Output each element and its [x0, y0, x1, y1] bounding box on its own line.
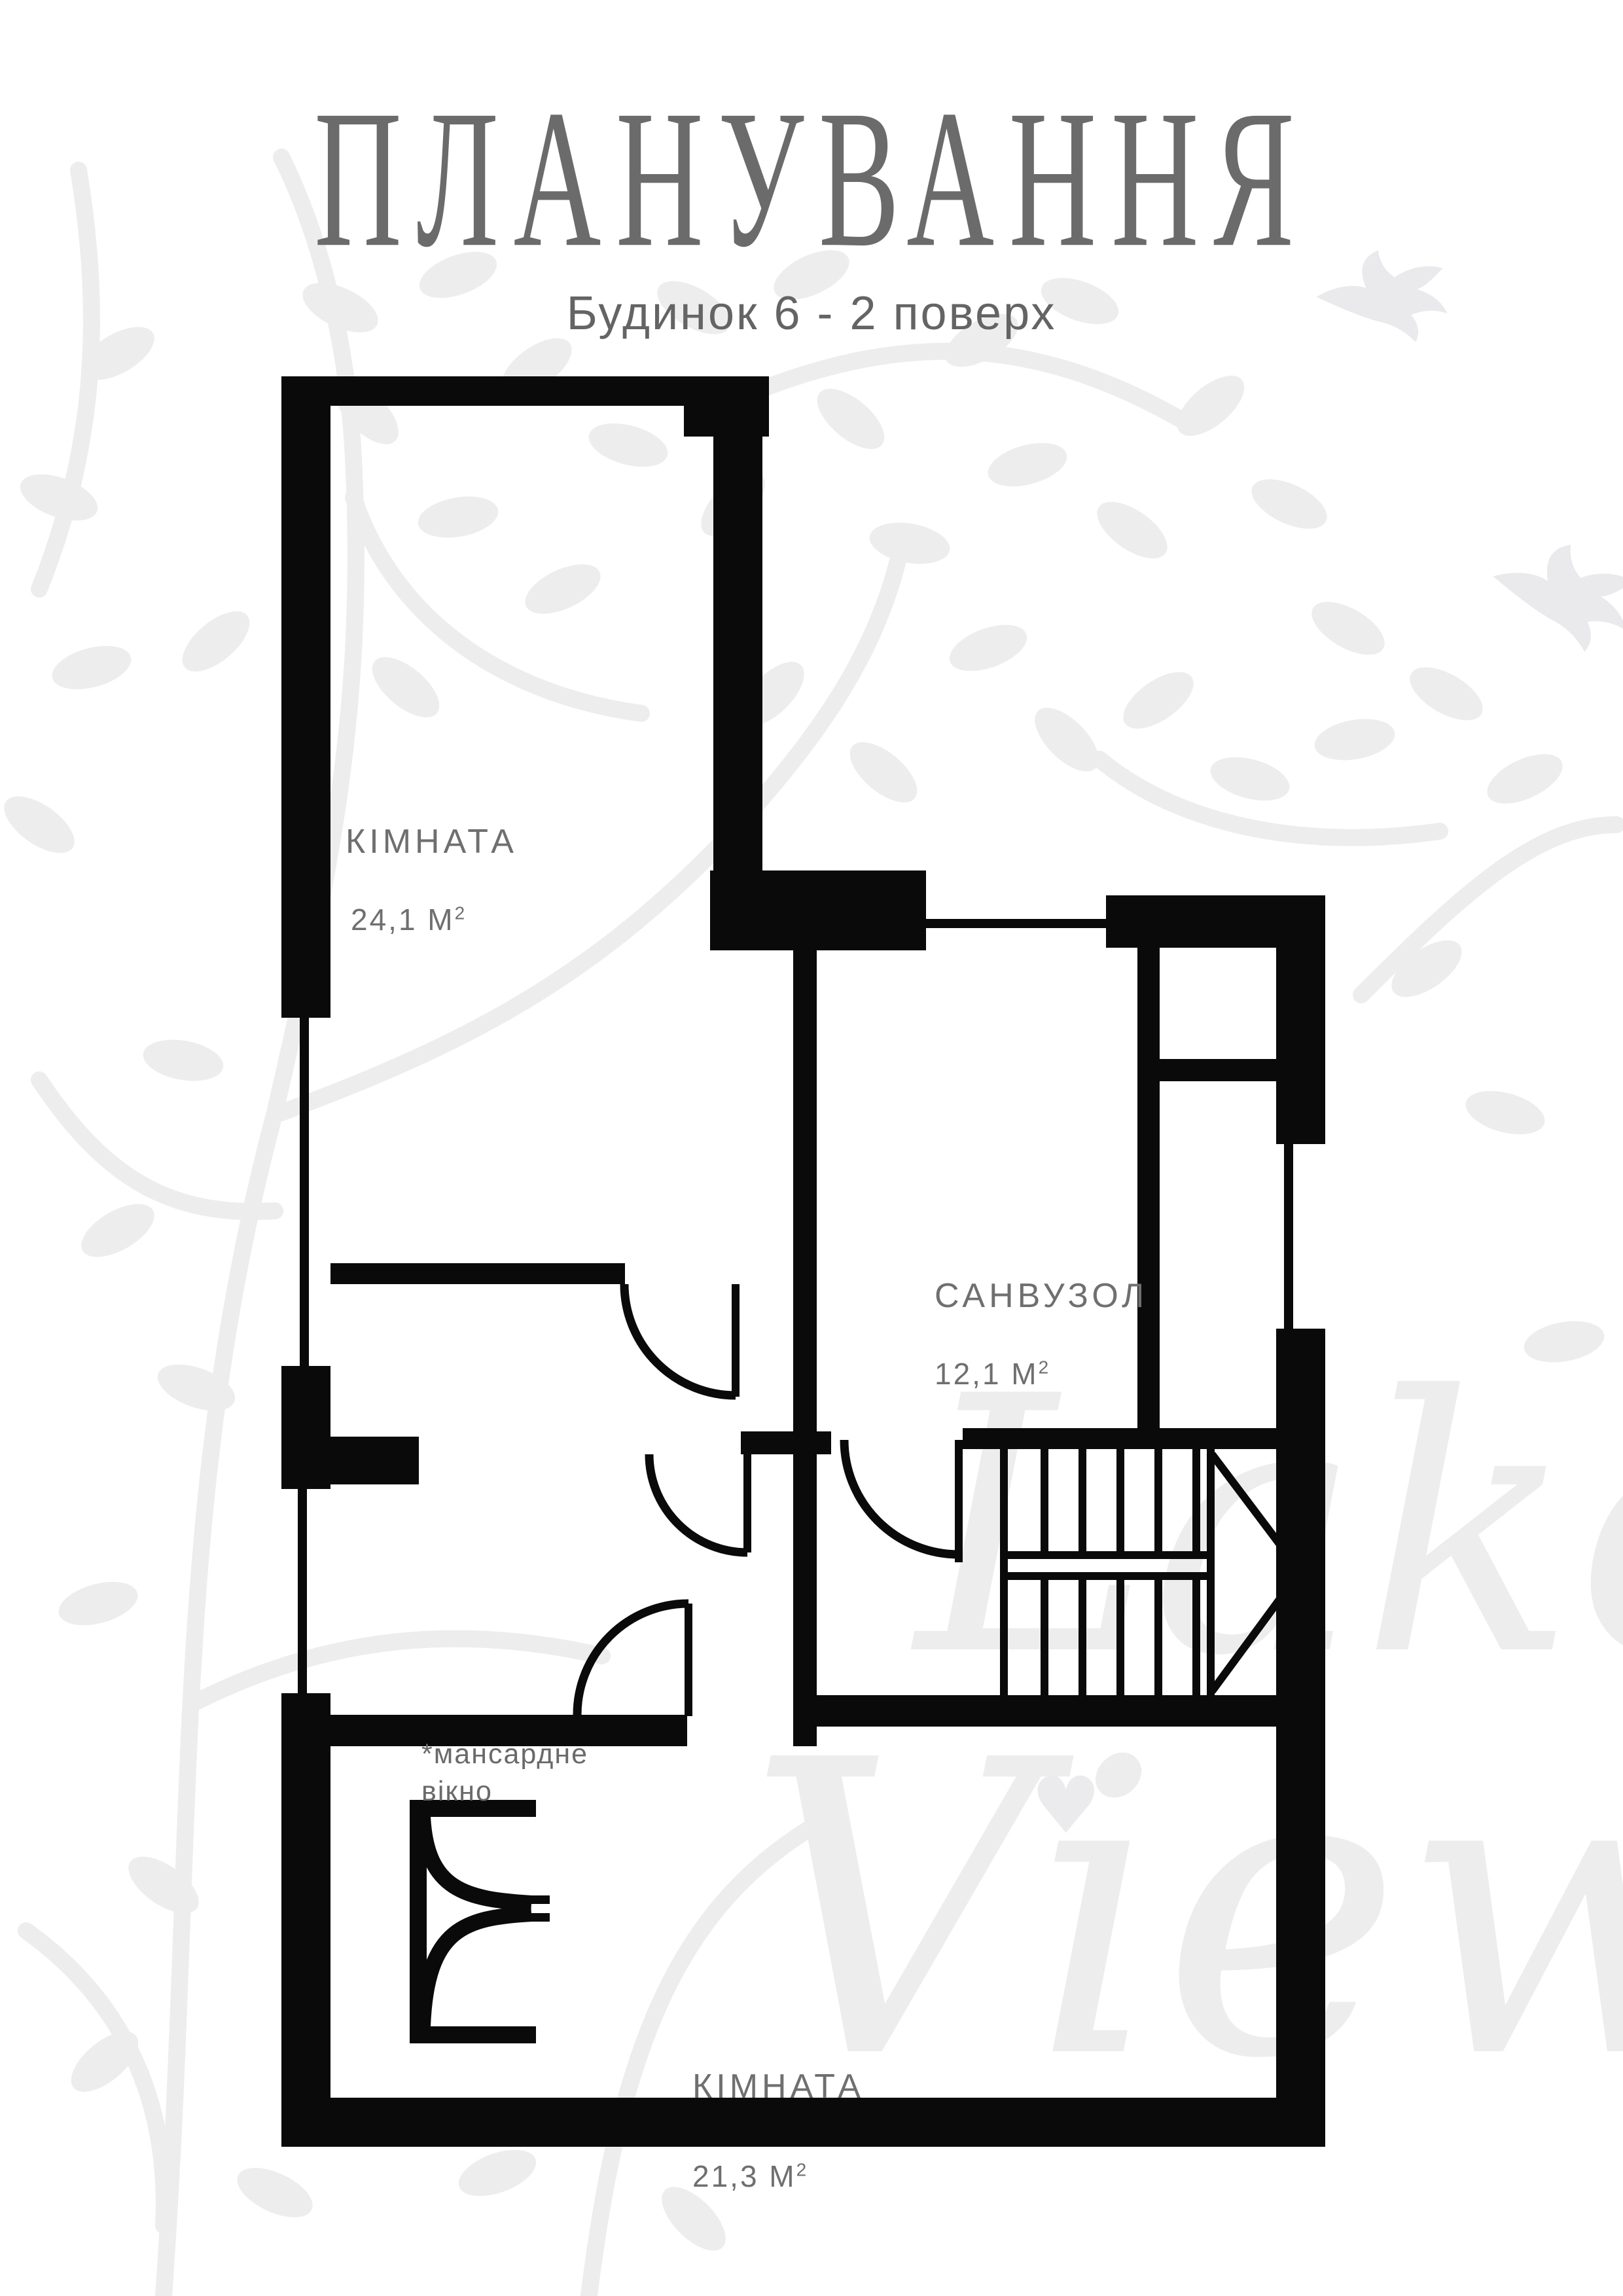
bathroom-area: 12,1 М2 — [935, 1356, 1623, 1391]
room-bottom-area: 21,3 М2 — [692, 2159, 1623, 2194]
floor-plan — [0, 0, 1623, 2296]
door-arc-hall — [624, 1284, 736, 1395]
door-leaf-hall — [732, 1284, 740, 1397]
door-arc-room-bottom — [577, 1604, 688, 1715]
window-left-lower — [298, 1489, 307, 1693]
room-bottom-label: КІМНАТА — [692, 2067, 1623, 2106]
room-top-label: КІМНАТА — [346, 822, 1623, 861]
wall-stairs-top — [963, 1428, 1325, 1449]
door-leaf-corridor-left — [743, 1454, 751, 1552]
wall-central — [793, 950, 817, 1746]
wall-left-upper — [281, 376, 330, 1018]
stair-fan-divider — [1207, 1449, 1215, 1695]
door-arc-corridor-right — [844, 1440, 959, 1554]
room-top-area: 24,1 М2 — [351, 902, 1623, 937]
wall-stairs-bottom — [815, 1695, 1325, 1727]
page-title: ПЛАНУВАННЯ — [314, 65, 1309, 293]
bathroom-label: САНВУЗОЛ — [935, 1276, 1623, 1316]
window-left-upper — [300, 1018, 309, 1366]
door-arc-corridor-left — [649, 1454, 747, 1552]
wall-left-lower — [281, 1693, 330, 2147]
wall-right-lower — [1276, 1329, 1325, 2147]
staircase — [1000, 1449, 1215, 1695]
wall-stub — [741, 1431, 831, 1454]
door-leaf-room-bottom — [685, 1604, 692, 1716]
mansard-window-note: *мансардне вікно — [421, 1736, 588, 1810]
floor-plan-page: Lake View ♥ ПЛАНУВАННЯ Будинок 6 - 2 пов… — [0, 0, 1623, 2296]
door-arcs — [577, 1284, 959, 1715]
door-leaf-corridor-right — [955, 1440, 963, 1562]
wall-shaft-bottom — [1137, 1059, 1276, 1081]
wall-pier-block — [281, 1437, 419, 1484]
door-leaves — [685, 1284, 963, 1716]
wall-hallway-top — [330, 1263, 625, 1284]
page-subtitle: Будинок 6 - 2 поверх — [567, 287, 1057, 340]
mansard-window-symbol — [410, 1800, 550, 2043]
